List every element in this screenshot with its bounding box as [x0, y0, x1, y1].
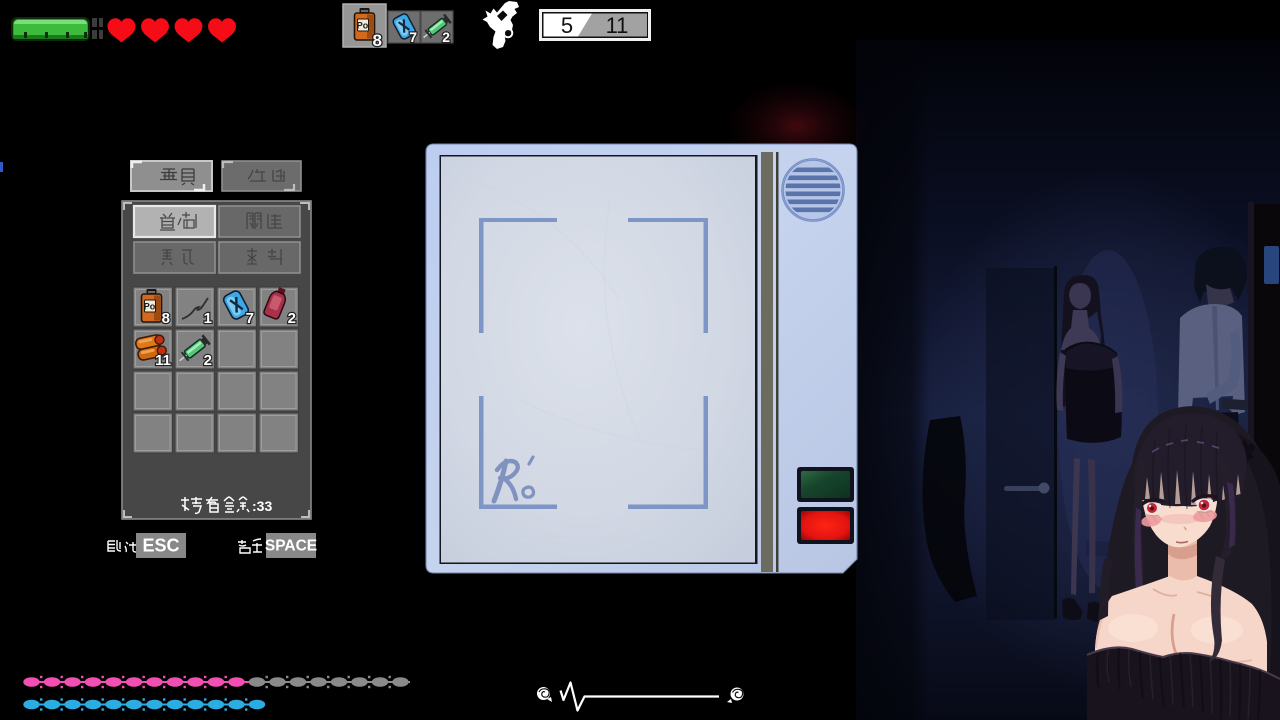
svg-text:7: 7	[409, 29, 417, 45]
svg-text:11: 11	[155, 352, 171, 369]
svg-text:ESC: ESC	[142, 536, 179, 556]
svg-text:2: 2	[204, 352, 212, 369]
svg-text:1: 1	[204, 310, 212, 327]
svg-text:8: 8	[373, 31, 382, 50]
svg-text:8: 8	[162, 310, 170, 327]
svg-text:7: 7	[246, 310, 254, 327]
svg-text:11: 11	[606, 13, 629, 38]
svg-text:Po: Po	[357, 21, 369, 31]
svg-text:2: 2	[442, 29, 450, 45]
svg-text::33: :33	[252, 498, 272, 514]
svg-text:5: 5	[561, 13, 573, 38]
svg-text:2: 2	[288, 310, 296, 327]
svg-text:SPACE: SPACE	[265, 538, 317, 555]
svg-text:Po: Po	[144, 302, 156, 312]
